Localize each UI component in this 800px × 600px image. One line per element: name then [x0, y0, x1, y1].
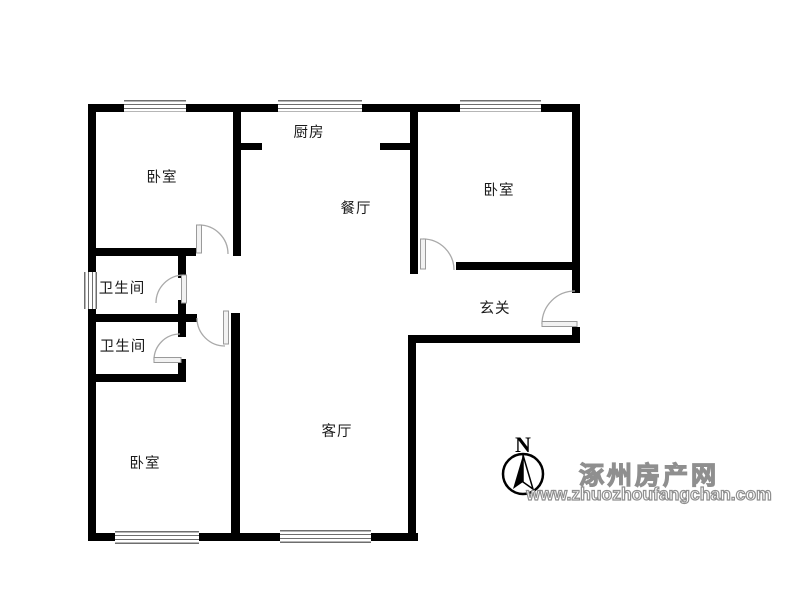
room-label-entry-hall: 玄关 [455, 297, 535, 318]
room-label-bedroom-top-right: 卧室 [459, 179, 539, 200]
door-arc-hall [197, 318, 225, 346]
watermark-site-url: www.zhuozhoufangchan.com [524, 484, 774, 505]
room-label-kitchen: 厨房 [269, 121, 349, 142]
door-leaf-bath2 [154, 358, 181, 363]
room-label-bedroom-top-left: 卧室 [122, 166, 202, 187]
door-leaf-bedroom2 [421, 239, 426, 269]
room-label-bedroom-bottom-left: 卧室 [105, 452, 185, 473]
room-label-living: 客厅 [297, 420, 377, 441]
door-leaf-hall [224, 311, 229, 344]
door-arc-bedroom2 [423, 239, 454, 270]
door-arc-bedroom1 [199, 225, 228, 254]
door-leaf-entry [542, 322, 577, 327]
door-leaf-bedroom1 [197, 225, 202, 253]
door-arc-entry [542, 291, 575, 324]
room-label-bathroom-lower: 卫生间 [83, 335, 163, 356]
room-label-bathroom-upper: 卫生间 [82, 277, 162, 298]
compass-needle-left-icon [513, 455, 523, 489]
floorplan-canvas: 卧室 厨房 卧室 餐厅 卫生间 玄关 卫生间 客厅 卧室 N 涿州房产网 www… [0, 0, 800, 600]
doors-and-compass-graphic [0, 0, 800, 600]
door-leaf-bath1 [182, 275, 187, 303]
compass-north-label: N [493, 432, 553, 458]
room-label-dining: 餐厅 [316, 197, 396, 218]
